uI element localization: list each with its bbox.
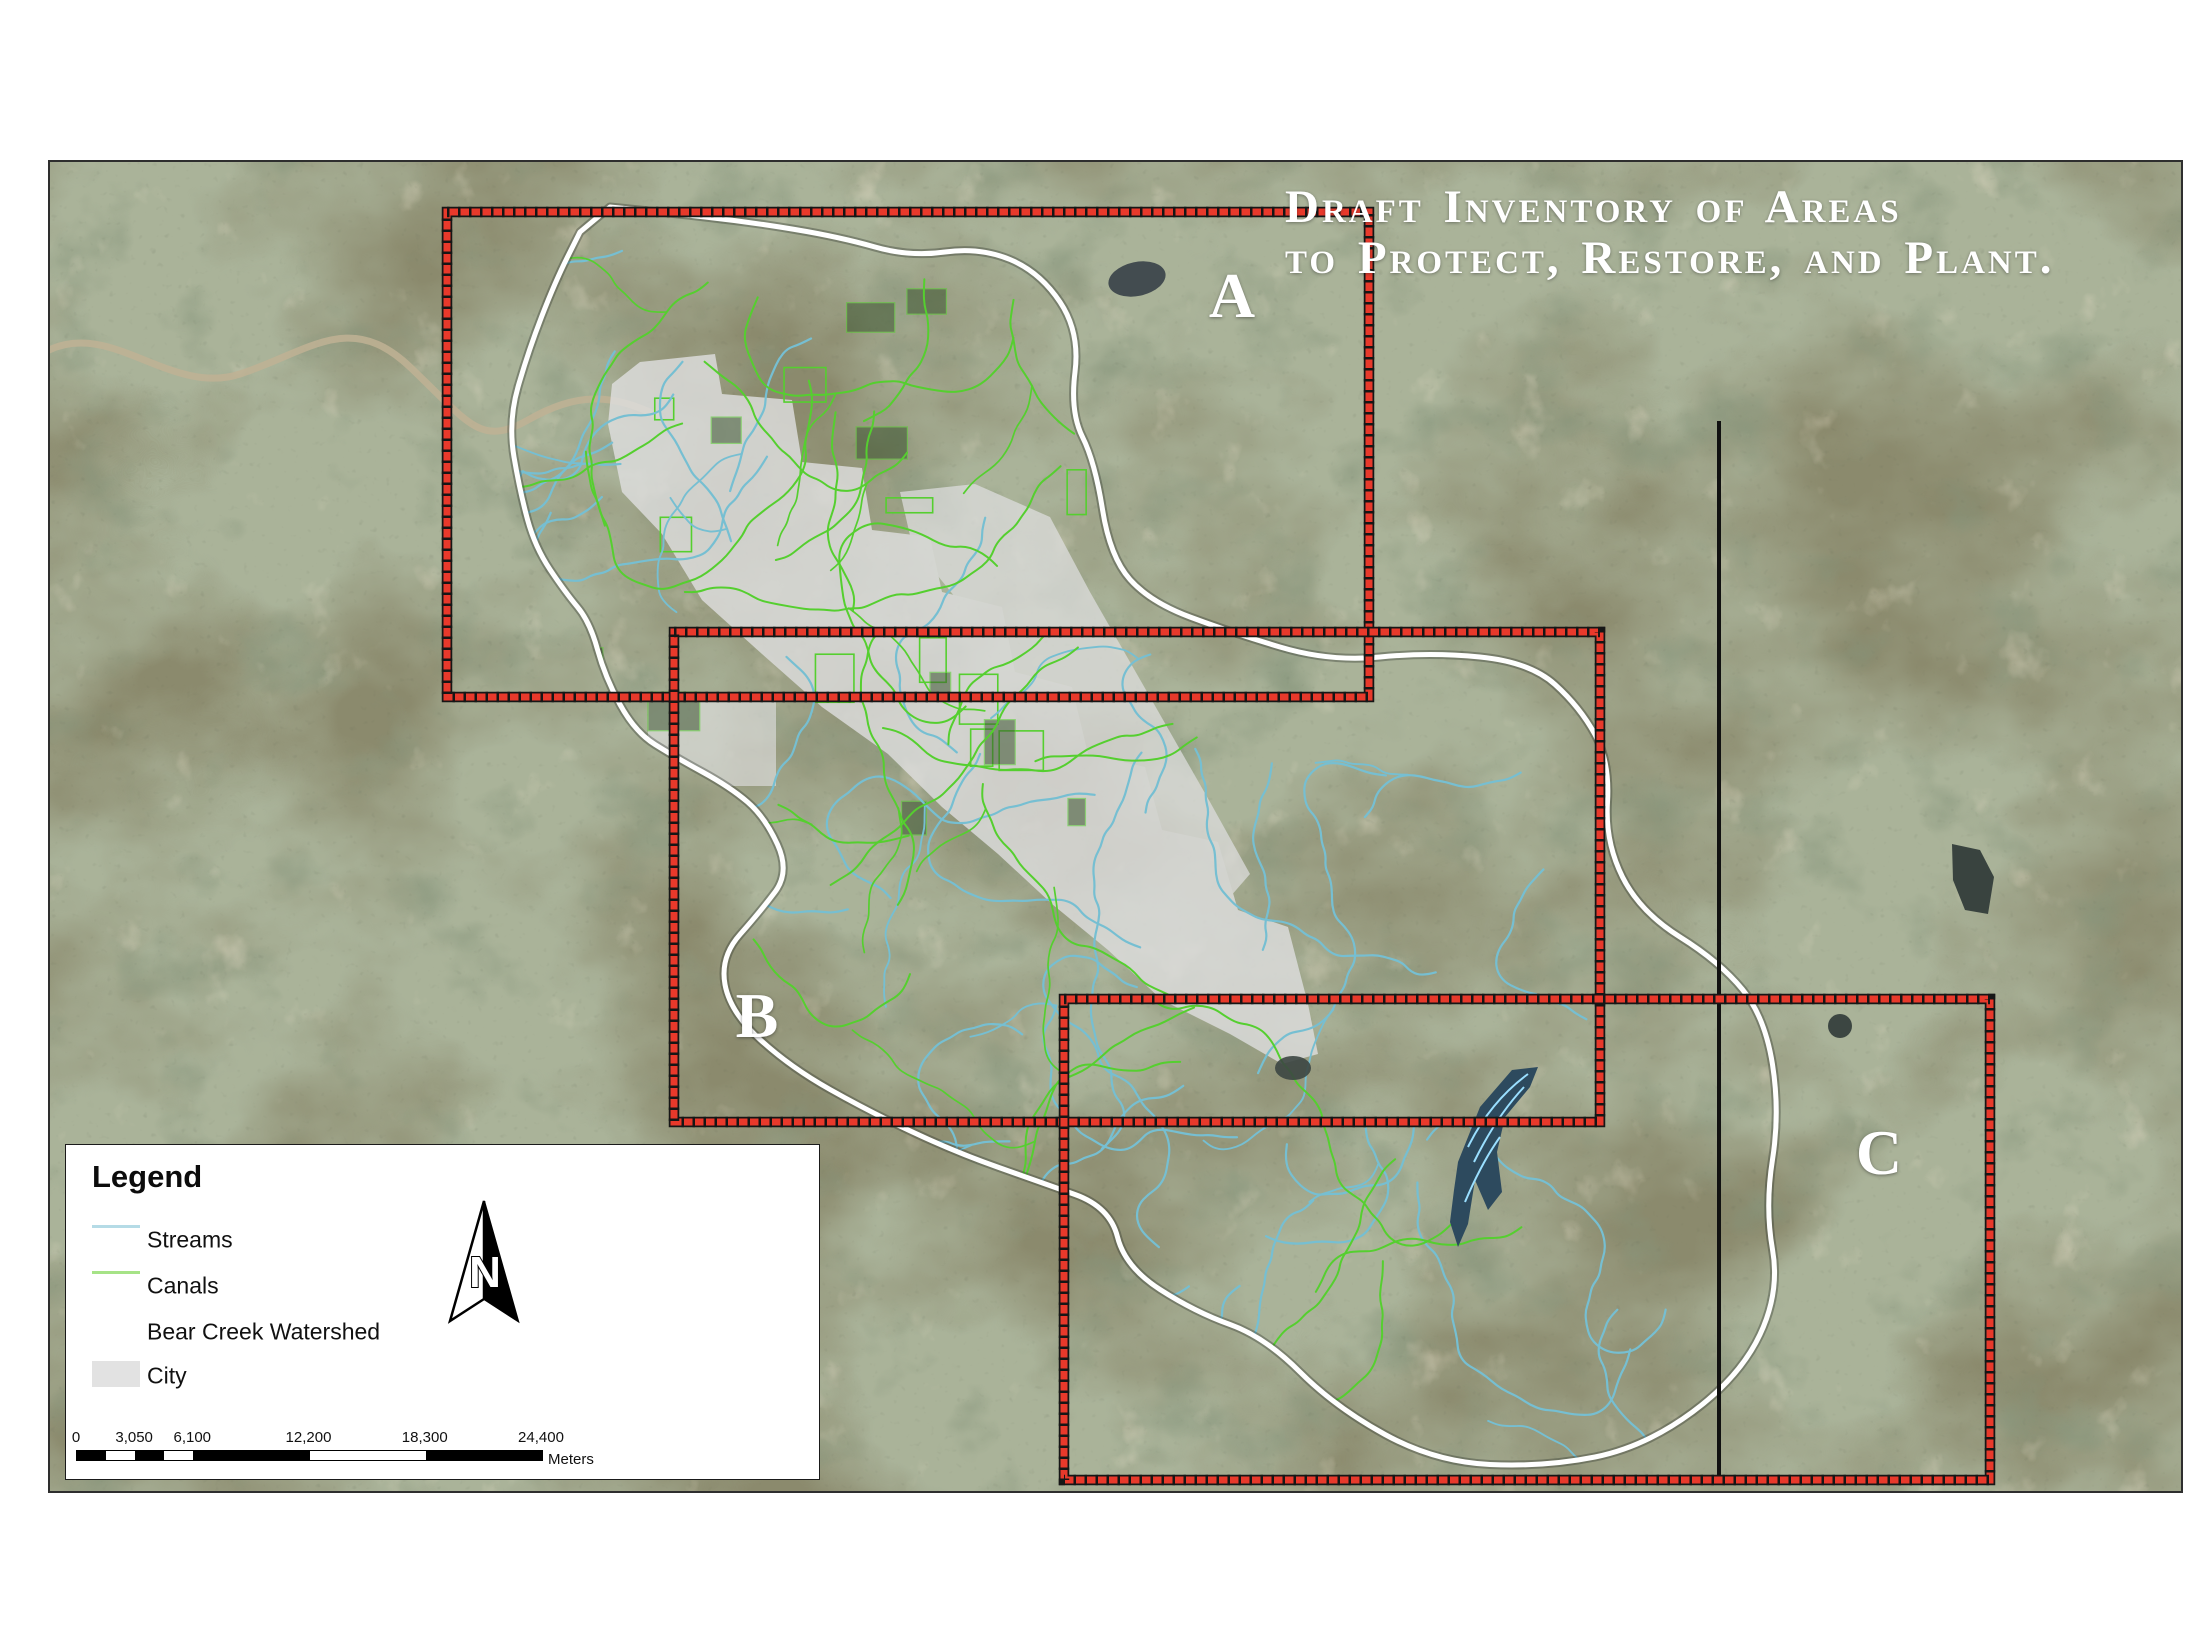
scale-segment: [426, 1451, 542, 1460]
scale-segment: [310, 1451, 426, 1460]
scale-tick-label: 0: [72, 1429, 80, 1446]
scale-tick-label: 6,100: [173, 1429, 211, 1446]
scale-segment: [164, 1451, 193, 1460]
north-arrow-letter: N: [469, 1248, 501, 1297]
legend-panel: Legend Streams Canals Bear Creek Watersh…: [65, 1144, 820, 1480]
city-label: City: [147, 1363, 187, 1390]
map-canvas: Draft Inventory of Areas to Protect, Res…: [48, 160, 2183, 1493]
area-label-a: A: [1187, 264, 1277, 328]
canals-line-swatch: [92, 1271, 140, 1274]
map-title-line1: Draft Inventory of Areas: [1285, 182, 2055, 233]
page: { "map": { "title": { "line1": "Draft In…: [0, 0, 2200, 1650]
scale-bar-segments: [76, 1450, 543, 1461]
scale-segment: [106, 1451, 135, 1460]
north-arrow-icon: N: [438, 1197, 530, 1327]
area-label-c: C: [1834, 1121, 1924, 1185]
scale-bar: 03,0506,10012,20018,30024,400 Meters: [76, 1429, 636, 1475]
scale-tick-label: 12,200: [286, 1429, 332, 1446]
watershed-line-swatch: [92, 1317, 140, 1320]
dark-pond: [1275, 1056, 1311, 1080]
scale-segment: [193, 1451, 309, 1460]
streams-label: Streams: [147, 1227, 233, 1254]
watershed-label: Bear Creek Watershed: [147, 1319, 380, 1346]
map-title: Draft Inventory of Areas to Protect, Res…: [1285, 182, 2055, 284]
streams-line-swatch: [92, 1225, 140, 1228]
scale-bar-unit: Meters: [548, 1451, 594, 1468]
area-label-b: B: [712, 984, 802, 1048]
scale-segment: [135, 1451, 164, 1460]
canals-label: Canals: [147, 1273, 219, 1300]
scale-segment: [77, 1451, 106, 1460]
scale-tick-label: 24,400: [518, 1429, 564, 1446]
map-title-line2: to Protect, Restore, and Plant.: [1285, 233, 2055, 284]
scale-tick-label: 18,300: [402, 1429, 448, 1446]
city-fill-swatch: [92, 1361, 140, 1387]
legend-title: Legend: [92, 1159, 202, 1195]
scale-tick-label: 3,050: [115, 1429, 153, 1446]
